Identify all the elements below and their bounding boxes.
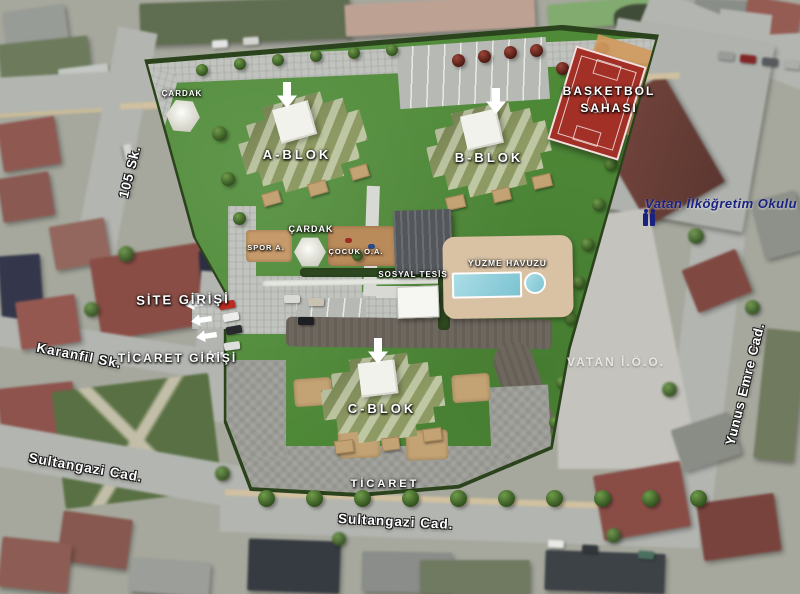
a-blok-label: A-BLOK [252, 147, 342, 162]
c-blok-label: C-BLOK [337, 401, 427, 416]
basketball-court-label: BASKETBOL SAHASI [550, 83, 668, 118]
site-plan-map: BASKETBOL SAHASI A-BLOK B-BLOK C-BLOK ÇA… [0, 0, 800, 594]
social-facility-label: SOSYAL TESİS [376, 270, 450, 279]
person-glyph [650, 213, 655, 226]
swimming-pool-label: YÜZME HAVUZU [455, 258, 560, 268]
basketball-label-line2: SAHASI [550, 100, 668, 117]
commerce-entrance-label: TİCARET GİRİŞİ [100, 351, 255, 365]
person-glyph [643, 213, 648, 226]
street-sultangazi-south-label: Sultangazi Cad. [338, 511, 454, 532]
street-yunus-emre-label: Yunus Emre Cad. [722, 321, 767, 447]
street-105-label: 105 Sk. [116, 144, 144, 200]
site-entrance-label: SİTE GİRİŞİ [118, 291, 248, 308]
school-abbr-label: VATAN İ.Ö.O. [560, 355, 672, 369]
gazebo-central-label: ÇARDAK [280, 224, 342, 234]
b-blok-label: B-BLOK [444, 150, 534, 165]
labels-layer: BASKETBOL SAHASI A-BLOK B-BLOK C-BLOK ÇA… [0, 0, 800, 594]
school-icon [643, 213, 655, 226]
street-karanfil-label: Karanfil Sk. [35, 340, 123, 371]
basketball-label-line1: BASKETBOL [550, 83, 668, 100]
sports-area-label: SPOR A. [235, 243, 297, 252]
street-sultangazi-west-label: Sultangazi Cad. [28, 450, 144, 485]
playground-label: ÇOCUK O.A. [320, 247, 392, 256]
school-name-label: Vatan İlköğretim Okulu [645, 196, 797, 211]
commerce-strip-label: TİCARET [325, 478, 445, 490]
gazebo-northwest-label: ÇARDAK [147, 89, 217, 98]
